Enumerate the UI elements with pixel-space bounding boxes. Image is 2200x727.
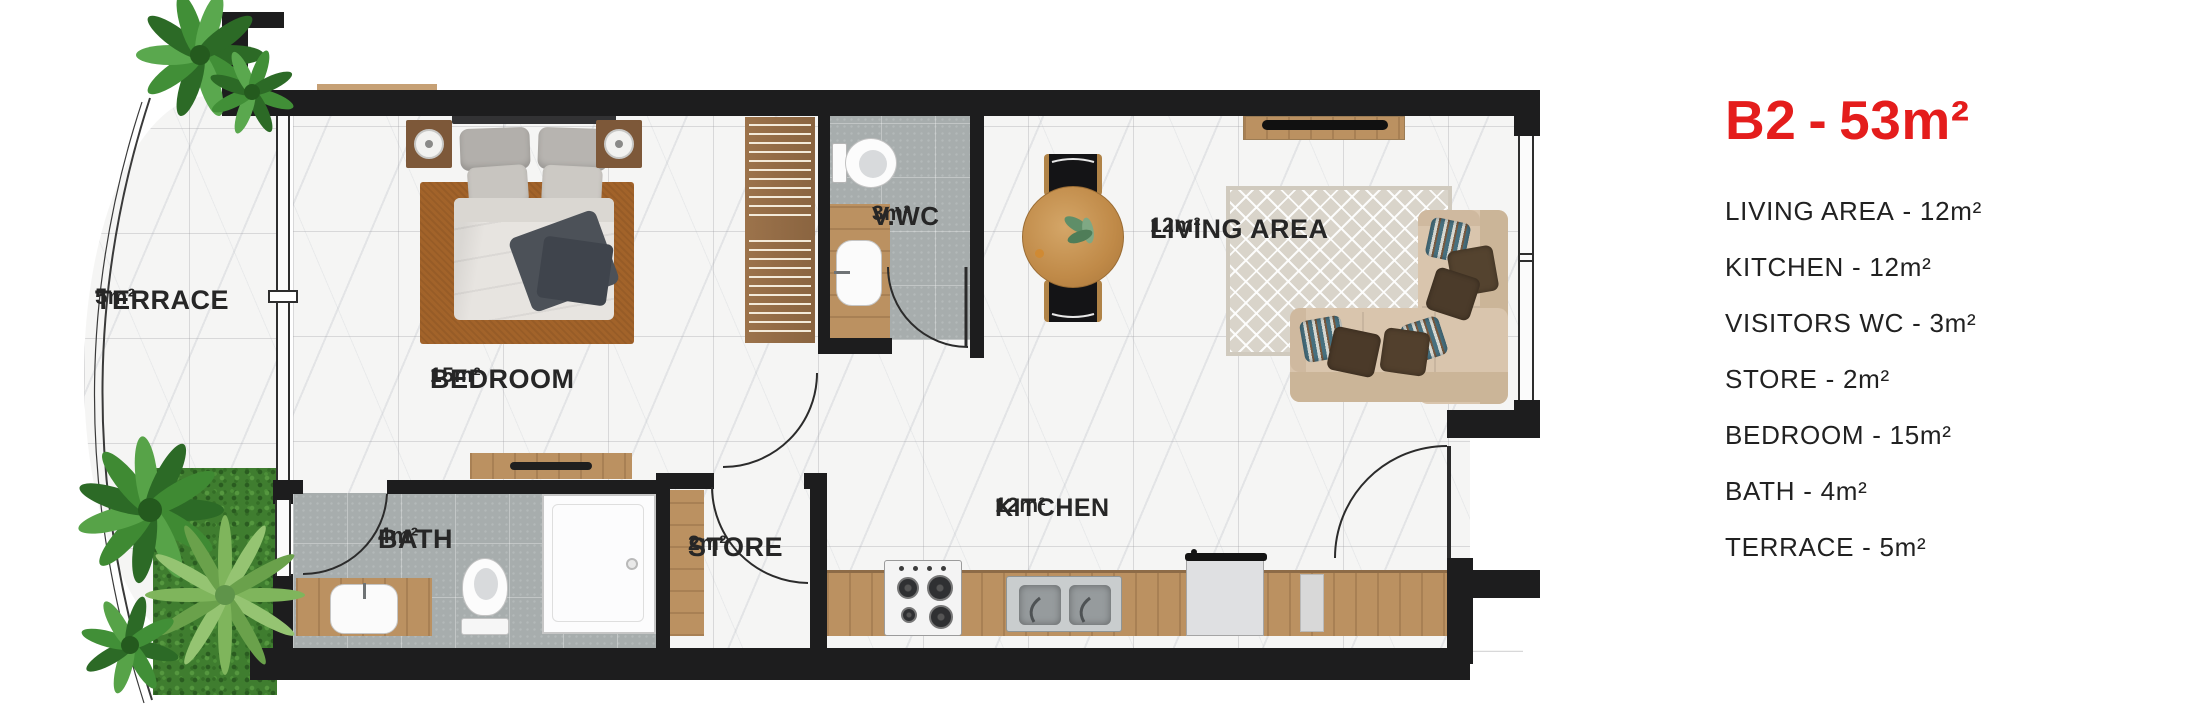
room-area: 5m²: [95, 283, 136, 312]
legend-item-separator: -: [1852, 252, 1861, 282]
unit-total-area: 53m²: [1839, 89, 1969, 151]
legend-item-area: 12m²: [1869, 252, 1931, 282]
door-arc-bedroom: [723, 373, 817, 467]
kitchen-faucet: [1081, 598, 1090, 622]
legend-item-label: BEDROOM: [1725, 420, 1864, 450]
legend-item-separator: -: [1826, 364, 1835, 394]
legend-item-area: 3m²: [1929, 308, 1976, 338]
plant-bottom-small: [80, 595, 181, 696]
legend-item-area: 5m²: [1880, 532, 1927, 562]
room-area: 15m²: [430, 362, 481, 389]
legend-item: BEDROOM-15m²: [1725, 422, 2165, 448]
door-arc-vwc: [888, 267, 968, 347]
legend-item-area: 4m²: [1821, 476, 1868, 506]
room-area: 12m²: [1150, 212, 1201, 239]
door-arc-bath: [303, 494, 387, 574]
title-separator: -: [1808, 89, 1827, 151]
room-area: 3m²: [872, 200, 911, 227]
legend-item-separator: -: [1912, 308, 1921, 338]
legend-item: KITCHEN-12m²: [1725, 254, 2165, 280]
unit-code: B2: [1725, 89, 1796, 151]
room-area: 12m²: [995, 492, 1046, 519]
legend-item-area: 2m²: [1843, 364, 1890, 394]
legend-item: STORE-2m²: [1725, 366, 2165, 392]
legend-item-label: KITCHEN: [1725, 252, 1844, 282]
legend-item-area: 15m²: [1890, 420, 1952, 450]
legend-item-separator: -: [1862, 532, 1871, 562]
legend-item-label: STORE: [1725, 364, 1818, 394]
legend-item-label: LIVING AREA: [1725, 196, 1895, 226]
legend-item-label: TERRACE: [1725, 532, 1854, 562]
legend-item: TERRACE-5m²: [1725, 534, 2165, 560]
floorplan-page: TERRACE 5m² BEDROOM 15m² V.WC 3m² BATH 4…: [0, 0, 2200, 727]
legend-panel: B2-53m² LIVING AREA-12m² KITCHEN-12m² VI…: [1725, 88, 2165, 590]
legend-item: BATH-4m²: [1725, 478, 2165, 504]
legend-item-area: 12m²: [1920, 196, 1982, 226]
plan-overlay: [0, 0, 1560, 727]
legend-item: VISITORS WC-3m²: [1725, 310, 2165, 336]
legend-item-separator: -: [1872, 420, 1881, 450]
door-arc-entrance: [1335, 446, 1447, 558]
legend-item-separator: -: [1803, 476, 1812, 506]
floor-plan: TERRACE 5m² BEDROOM 15m² V.WC 3m² BATH 4…: [0, 0, 1560, 727]
kitchen-faucet: [1031, 598, 1040, 622]
chair-frame-line: [1052, 314, 1094, 317]
unit-title: B2-53m²: [1725, 88, 2165, 152]
legend-item-label: VISITORS WC: [1725, 308, 1904, 338]
chair-frame-line: [1052, 159, 1094, 162]
room-area: 2m²: [688, 530, 727, 557]
room-area: 4m²: [378, 522, 419, 551]
legend-item-separator: -: [1903, 196, 1912, 226]
legend-item: LIVING AREA-12m²: [1725, 198, 2165, 224]
legend-item-label: BATH: [1725, 476, 1795, 506]
